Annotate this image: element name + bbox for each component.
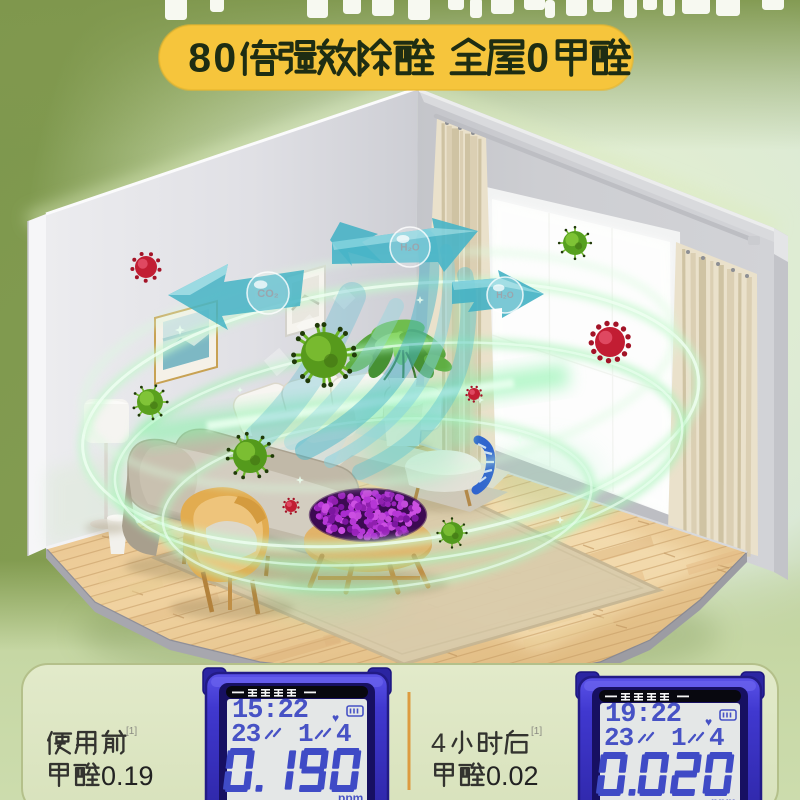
svg-text:4: 4 <box>336 719 352 749</box>
svg-text:ppm: ppm <box>711 795 736 800</box>
svg-text:4: 4 <box>431 728 446 758</box>
svg-text:H₂O: H₂O <box>496 290 514 300</box>
svg-text:23: 23 <box>604 723 634 753</box>
svg-text:[1]: [1] <box>531 726 542 737</box>
svg-text:0.19: 0.19 <box>101 761 154 791</box>
svg-text:CO₂: CO₂ <box>257 288 279 300</box>
svg-text:8: 8 <box>188 35 211 81</box>
svg-text:[1]: [1] <box>126 726 137 737</box>
svg-text:H₂O: H₂O <box>400 243 420 254</box>
svg-text:0.02: 0.02 <box>486 761 539 791</box>
svg-text:0: 0 <box>213 35 236 81</box>
svg-text:4: 4 <box>709 723 725 753</box>
svg-text:0: 0 <box>526 35 549 81</box>
svg-text:1: 1 <box>298 719 314 749</box>
svg-text:1: 1 <box>671 723 687 753</box>
svg-text:23: 23 <box>231 719 261 749</box>
svg-text:ppm: ppm <box>338 791 363 800</box>
